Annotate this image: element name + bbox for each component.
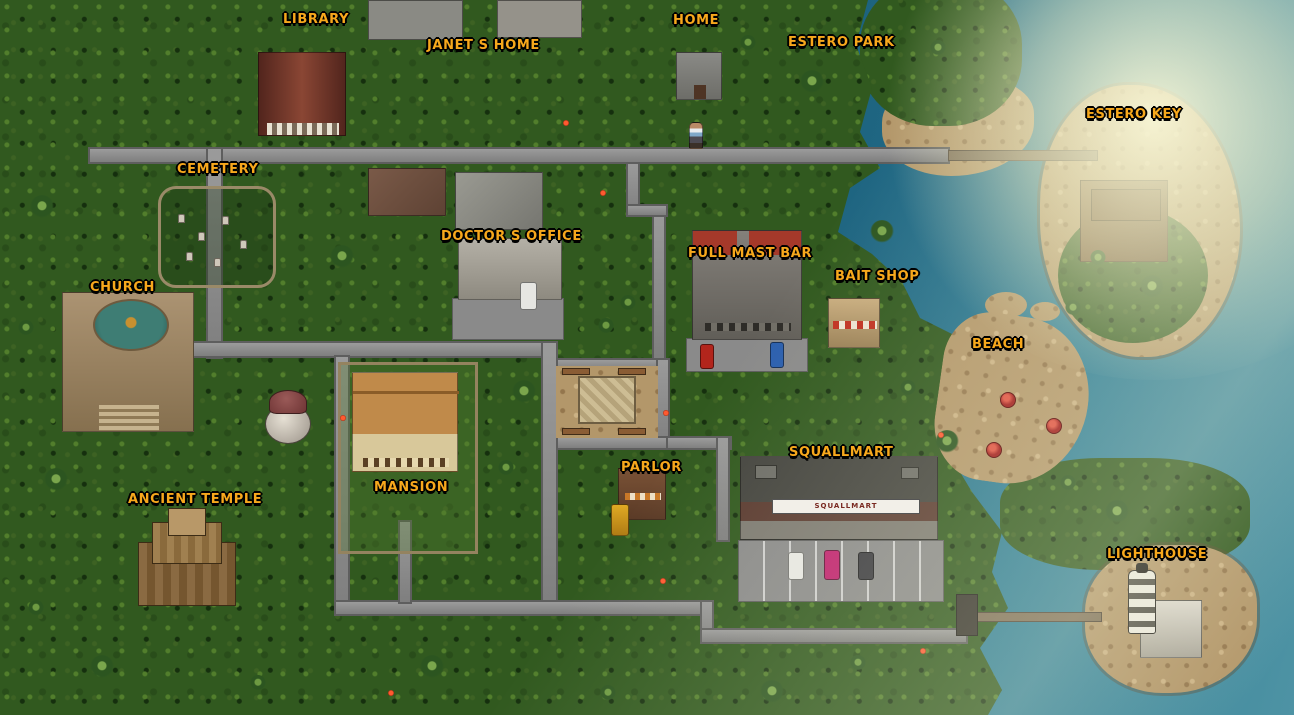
squallmart-parking-lot xyxy=(738,540,944,602)
janets-home-building-1 xyxy=(368,168,446,216)
lighthouse-tower xyxy=(1128,570,1156,634)
doctors-office-building xyxy=(458,238,562,300)
player-marker xyxy=(689,122,703,149)
map-label-squallmart[interactable]: SQUALLMART xyxy=(789,445,894,460)
palm-tree-icon xyxy=(620,295,636,311)
janets-home-building-2 xyxy=(455,172,543,230)
map-label-janets-home[interactable]: JANET S HOME xyxy=(427,38,540,53)
cemetery-grounds xyxy=(158,186,276,288)
palm-tree-icon xyxy=(512,380,536,404)
car-red xyxy=(700,344,714,369)
map-label-full-mast-bar[interactable]: FULL MAST BAR xyxy=(688,246,812,261)
game-world-map: SQUALLMART xyxy=(0,0,1294,715)
doctors-office-lot xyxy=(452,298,564,340)
plaza-bench xyxy=(618,368,646,375)
palm-tree-icon xyxy=(1065,300,1081,316)
car-blue xyxy=(770,342,784,368)
map-label-parlor[interactable]: PARLOR xyxy=(621,460,682,475)
palm-tree-icon xyxy=(740,35,756,51)
car-white-2 xyxy=(788,552,804,580)
road-plaza-bottom xyxy=(556,436,670,450)
palm-tree-icon xyxy=(1060,475,1076,491)
car-dark xyxy=(858,552,874,580)
bait-shop-building xyxy=(828,298,880,348)
mansion-roof-ridge xyxy=(353,391,459,394)
palm-tree-icon xyxy=(420,655,444,679)
palm-tree-icon xyxy=(18,320,34,336)
map-label-lighthouse[interactable]: LIGHTHOUSE xyxy=(1107,547,1207,562)
car-magenta xyxy=(824,550,840,580)
temple-top xyxy=(168,508,206,536)
map-label-estero-key[interactable]: ESTERO KEY xyxy=(1086,107,1182,122)
palm-tree-icon xyxy=(330,245,354,269)
stilt-house-roof xyxy=(1091,189,1161,221)
plaza-gazebo xyxy=(578,376,636,424)
road-bar-west xyxy=(652,206,666,360)
mansion-windows xyxy=(363,458,449,467)
plaza-bench xyxy=(618,428,646,435)
gravestone xyxy=(222,216,229,225)
palm-tree-icon xyxy=(870,220,894,244)
flower-icon xyxy=(388,690,394,696)
church-dome xyxy=(93,299,169,351)
gravestone xyxy=(240,240,247,249)
palm-tree-icon xyxy=(800,70,824,94)
palm-tree-icon xyxy=(30,195,54,219)
road-bottom-east xyxy=(700,628,968,644)
road-squallmart-link xyxy=(716,436,730,542)
palm-tree-icon xyxy=(760,680,784,704)
map-label-cemetery[interactable]: CEMETERY xyxy=(177,162,259,177)
home-building xyxy=(676,52,722,100)
palm-tree-icon xyxy=(930,40,946,56)
flower-icon xyxy=(920,648,926,654)
map-label-home[interactable]: HOME xyxy=(673,13,719,28)
estate-building-north-1 xyxy=(368,0,463,40)
gravestone xyxy=(198,232,205,241)
bar-windows xyxy=(705,323,791,331)
truck-yellow xyxy=(611,504,629,536)
palm-tree-icon xyxy=(90,655,114,679)
plaza-bench xyxy=(562,368,590,375)
lighthouse-pier xyxy=(962,612,1102,622)
palm-tree-icon xyxy=(250,675,266,691)
palm-tree-icon xyxy=(28,600,44,616)
beach-umbrella-icon xyxy=(986,442,1002,458)
squallmart-storefront-sign: SQUALLMART xyxy=(772,499,920,514)
flower-icon xyxy=(660,578,666,584)
library-building xyxy=(258,52,346,136)
palm-tree-icon xyxy=(1140,275,1164,299)
flower-icon xyxy=(563,120,569,126)
plaza-bench xyxy=(562,428,590,435)
water-tower-roof xyxy=(269,390,307,414)
lighthouse-lamp xyxy=(1136,563,1148,573)
map-label-church[interactable]: CHURCH xyxy=(90,280,155,295)
map-label-doctors-office[interactable]: DOCTOR S OFFICE xyxy=(441,229,582,244)
flower-icon xyxy=(938,432,944,438)
palm-tree-icon xyxy=(1090,250,1106,266)
road-bar-north xyxy=(626,204,668,217)
beach-umbrella-icon xyxy=(1046,418,1062,434)
ancient-temple-structure xyxy=(138,508,234,604)
pier-gate xyxy=(956,594,978,636)
palm-tree-icon xyxy=(598,318,614,334)
water-tower xyxy=(264,390,310,448)
estate-building-north-2 xyxy=(497,0,582,38)
palm-tree-icon xyxy=(600,685,616,701)
palm-tree-icon xyxy=(900,380,916,396)
church-steps xyxy=(99,405,159,431)
road-bottom-west xyxy=(334,600,714,616)
estero-key-stilt-house xyxy=(1080,180,1168,262)
parlor-awning xyxy=(625,493,661,500)
church-building xyxy=(62,292,194,432)
flower-icon xyxy=(663,410,669,416)
gravestone xyxy=(214,258,221,267)
palm-tree-icon xyxy=(44,468,68,492)
map-label-bait-shop[interactable]: BAIT SHOP xyxy=(835,269,919,284)
estero-park-peninsula xyxy=(860,0,1022,126)
beach-umbrella-icon xyxy=(1000,392,1016,408)
bridge-to-estero-key xyxy=(948,150,1098,161)
squallmart-roof-vent xyxy=(755,465,777,479)
flower-icon xyxy=(340,415,346,421)
map-label-mansion[interactable]: MANSION xyxy=(374,480,448,495)
bait-shop-awning xyxy=(833,321,877,329)
palm-tree-icon xyxy=(850,655,866,671)
squallmart-building xyxy=(740,456,938,540)
car-white xyxy=(520,282,537,310)
palm-tree-icon xyxy=(1105,500,1129,524)
flower-icon xyxy=(600,190,606,196)
map-label-beach[interactable]: BEACH xyxy=(972,337,1024,352)
map-label-estero-park[interactable]: ESTERO PARK xyxy=(788,35,895,50)
map-label-library[interactable]: LIBRARY xyxy=(283,12,349,27)
map-label-ancient-temple[interactable]: ANCIENT TEMPLE xyxy=(128,492,262,507)
gravestone xyxy=(186,252,193,261)
mansion-building xyxy=(352,372,458,472)
gravestone xyxy=(178,214,185,223)
palm-tree-icon xyxy=(498,460,514,476)
home-door xyxy=(694,85,706,99)
squallmart-roof-vent xyxy=(901,467,919,479)
library-columns xyxy=(267,123,339,135)
